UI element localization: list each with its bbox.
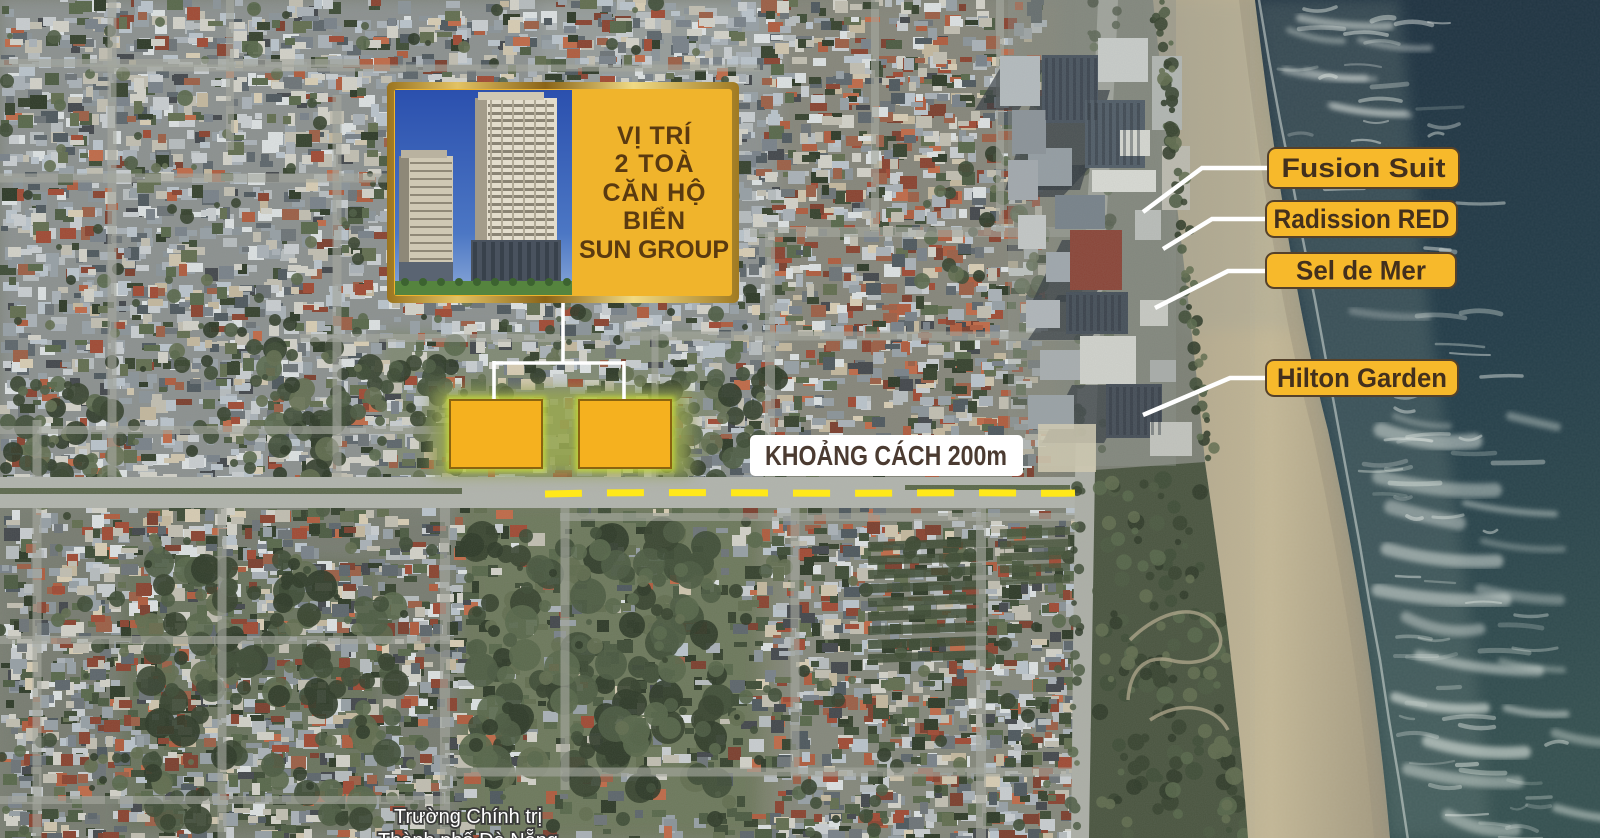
svg-text:VỊ TRÍ: VỊ TRÍ	[617, 121, 692, 150]
svg-text:SUN GROUP: SUN GROUP	[579, 236, 729, 264]
svg-text:Fusion Suit: Fusion Suit	[1282, 153, 1446, 183]
svg-text:KHOẢNG CÁCH 200m: KHOẢNG CÁCH 200m	[765, 439, 1007, 471]
svg-text:Trường Chính trị: Trường Chính trị	[394, 806, 542, 828]
svg-text:Radission RED: Radission RED	[1274, 204, 1450, 234]
svg-text:Thành phố Đà Nẵng: Thành phố Đà Nẵng	[378, 829, 558, 838]
svg-text:BIỂN: BIỂN	[623, 206, 685, 235]
svg-text:Hilton Garden: Hilton Garden	[1277, 363, 1447, 393]
svg-text:Sel de Mer: Sel de Mer	[1296, 256, 1426, 286]
svg-text:CĂN HỘ: CĂN HỘ	[603, 177, 706, 207]
svg-text:2 TOÀ: 2 TOÀ	[615, 149, 694, 178]
